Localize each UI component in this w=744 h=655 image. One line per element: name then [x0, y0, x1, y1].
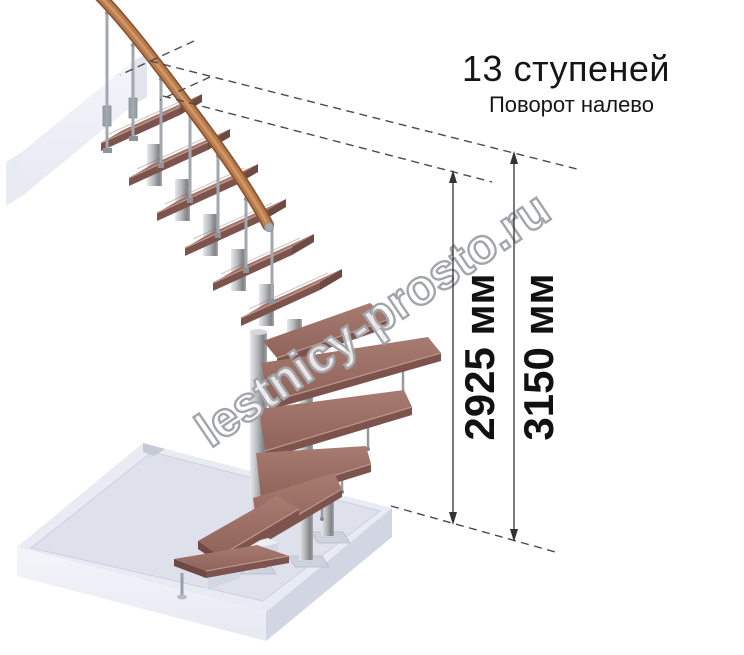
balusters [107, 12, 272, 303]
turn-direction-subtitle: Поворот налево [489, 92, 654, 118]
step-count-title: 13 ступеней [462, 48, 670, 90]
step-tread [213, 234, 314, 291]
staircase-diagram: lestnicy-prosto.ru 13 ступеней Поворот н… [0, 0, 744, 655]
dimension-label-3150: 3150 мм [516, 247, 562, 467]
straight-steps [101, 94, 342, 326]
handrail-end-cap [265, 223, 274, 232]
dimension-label-2925: 2925 мм [457, 247, 503, 467]
dashed-ground-level-line [391, 506, 559, 553]
